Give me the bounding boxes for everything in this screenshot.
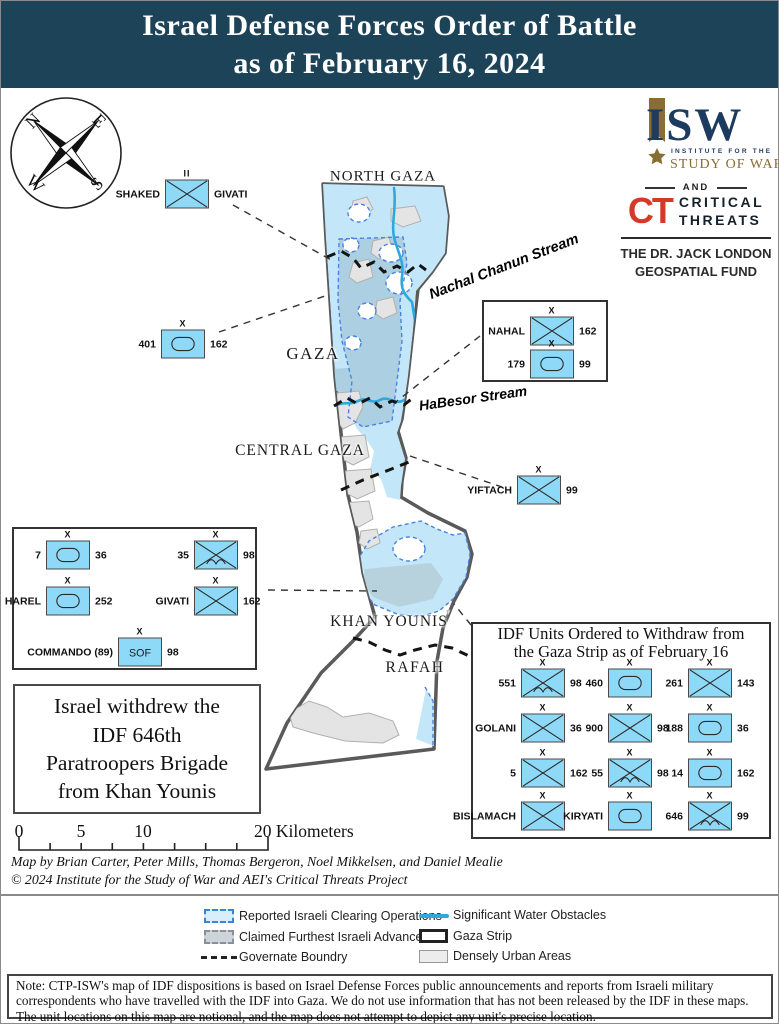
unit-echelon: X [626,749,633,758]
armor-symbol-icon [609,670,651,697]
isw-institute-text: INSTITUTE FOR THE [671,148,772,155]
unit-echelon: X [539,704,546,713]
unit-echelon: II [183,170,190,179]
credit-line2: © 2024 Institute for the Study of War an… [11,872,407,888]
callout-shaked [233,205,333,261]
armor-symbol-icon [531,351,573,378]
unit-left-label: COMMANDO (89) [27,646,113,658]
legend-label-governate: Governate Boundry [239,950,347,964]
credit-line1: Map by Brian Carter, Peter Mills, Thomas… [11,854,503,870]
unit-symbol-box [165,180,209,209]
unit-left-label: 460 [585,677,603,689]
annotation-box: Israel withdrew the IDF 646th Paratroope… [13,684,261,814]
unit-right-label: 99 [579,358,591,370]
legend-swatch-advances [204,930,234,944]
unit-golani: XGOLANI36 [521,714,565,743]
callout-yiftach [410,456,502,487]
label-rafah: RAFAH [386,659,445,677]
unit-echelon: X [706,749,713,758]
unit-left-label: BISLAMACH [453,810,516,822]
unit-left-label: GOLANI [475,722,516,734]
svg-text:SOF: SOF [129,648,151,660]
unit-symbol-box [608,669,652,698]
unit-left-label: 188 [665,722,683,734]
ct-word-threats: THREATS [679,212,764,230]
legend-swatch-governate [201,956,237,959]
legend-label-urban: Densely Urban Areas [453,949,571,963]
unit-right-label: 98 [167,646,179,658]
critical-threats-logo: CT CRITICAL THREATS [613,194,779,229]
infantry-symbol-icon [518,477,560,504]
clearing-operations-east-blob [447,637,463,663]
separator-dash [717,187,747,189]
unit-echelon: X [136,628,143,637]
unit-echelon: X [706,704,713,713]
scale-label-5: 5 [77,821,86,842]
unit-echelon: X [212,577,219,586]
geospatial-fund-label: THE DR. JACK LONDON GEOSPATIAL FUND [613,245,779,280]
armor-symbol-icon [689,715,731,742]
withdraw-box-title: IDF Units Ordered to Withdraw from the G… [475,625,767,661]
unit-left-label: 35 [177,549,189,561]
unit-symbol-box [521,759,565,788]
legend-label-gaza-strip: Gaza Strip [453,929,512,943]
unit-35: X3598 [194,541,238,570]
airborne-symbol-icon [522,670,564,697]
unit-symbol-box [608,759,652,788]
cleared-hole [345,336,361,350]
cleared-hole [343,238,359,252]
unit-echelon: X [706,659,713,668]
note-box: Note: CTP-ISW's map of IDF dispositions … [7,974,773,1019]
unit-symbol-box [46,587,90,616]
unit-echelon: X [539,749,546,758]
unit-left-label: SHAKED [116,188,160,200]
unit-echelon: X [626,792,633,801]
unit-right-label: 98 [657,767,669,779]
unit-echelon: X [539,659,546,668]
and-label: AND [683,182,710,193]
unit-right-label: 99 [566,484,578,496]
unit-echelon: X [626,704,633,713]
unit-symbol-box [688,759,732,788]
unit-401-brigade: X401162 [161,330,205,359]
unit-right-label: 162 [243,595,261,607]
unit-echelon: X [179,320,186,329]
unit-right-label: 98 [243,549,255,561]
unit-symbol-box [521,802,565,831]
infantry-symbol-icon [522,715,564,742]
label-central-gaza: CENTRAL GAZA [235,442,365,460]
unit-symbol-box [194,541,238,570]
unit-right-label: 36 [95,549,107,561]
branding-divider [621,237,771,239]
unit-echelon: X [539,792,546,801]
legend-label-water: Significant Water Obstacles [453,908,606,922]
unit-echelon: X [626,659,633,668]
footer-divider [1,894,778,896]
unit-givati: XGIVATI162 [194,587,238,616]
scale-label-20km: 20 Kilometers [254,821,354,842]
unit-symbol-box [517,476,561,505]
isw-logo: ISW INSTITUTE FOR THE STUDY OF WAR [613,96,779,176]
unit-551: X55198 [521,669,565,698]
unit-55: X5598 [608,759,652,788]
cleared-hole [358,303,376,319]
cleared-hole [386,272,412,294]
armor-symbol-icon [47,542,89,569]
unit-left-label: KIRYATI [563,810,603,822]
isw-acronym: ISW [646,99,743,151]
cleared-hole [393,537,425,561]
unit-right-label: 162 [737,767,755,779]
unit-echelon: X [64,577,71,586]
unit-right-label: 99 [737,810,749,822]
unit-left-label: GIVATI [156,595,189,607]
unit-left-label: 551 [498,677,516,689]
unit-left-label: 14 [671,767,683,779]
unit-left-label: 5 [510,767,516,779]
unit-left-label: 7 [35,549,41,561]
unit-symbol-box [194,587,238,616]
unit-echelon: X [64,531,71,540]
separator-dash [645,187,675,189]
armor-symbol-icon [689,760,731,787]
unit-900: X90098 [608,714,652,743]
legend-label-advances: Claimed Furthest Israeli Advances [239,930,429,944]
infantry-symbol-icon [166,181,208,208]
unit-right-label: 36 [570,722,582,734]
unit-left-label: 261 [665,677,683,689]
legend-label-clearing: Reported Israeli Clearing Operations [239,909,442,923]
compass-rose: N E S W [1,88,131,218]
unit-bislamach: XBISLAMACH [521,802,565,831]
infantry-symbol-icon [689,670,731,697]
unit-right-label: 162 [579,325,597,337]
unit-echelon: X [706,792,713,801]
infantry-symbol-icon [195,588,237,615]
isw-study-of-war-text: STUDY OF WAR [670,157,779,172]
unit-5: X5162 [521,759,565,788]
unit-right-label: GIVATI [214,188,247,200]
unit-7: X736 [46,541,90,570]
unit-right-label: 162 [570,767,588,779]
airborne-symbol-icon [195,542,237,569]
unit-188: X18836 [688,714,732,743]
infantry-symbol-icon [522,760,564,787]
unit-echelon: X [212,531,219,540]
callout-401 [219,295,328,332]
unit-right-label: 36 [737,722,749,734]
unit-commando-89: XCOMMANDO (89)SOF98 [118,638,162,667]
idf-order-of-battle-map: Israel Defense Forces Order of Battle as… [0,0,779,1024]
armor-symbol-icon [162,331,204,358]
legend-swatch-water [419,914,449,918]
legend-swatch-urban [419,950,448,963]
unit-460: X460 [608,669,652,698]
unit-left-label: 646 [665,810,683,822]
unit-symbol-box [161,330,205,359]
unit-echelon: X [535,466,542,475]
unit-left-label: 179 [507,358,525,370]
unit-shaked-givati: IISHAKEDGIVATI [165,180,209,209]
unit-symbol-box [521,669,565,698]
unit-646: X64699 [688,802,732,831]
unit-179: X17999 [530,350,574,379]
label-north-gaza: NORTH GAZA [330,169,436,186]
unit-yiftach: XYIFTACH99 [517,476,561,505]
unit-echelon: X [548,307,555,316]
unit-14: X14162 [688,759,732,788]
callout-harel [268,590,377,591]
scale-label-10: 10 [134,821,152,842]
infantry-symbol-icon [522,803,564,830]
unit-symbol-box [688,714,732,743]
unit-right-label: 143 [737,677,755,689]
clearing-dashed-outline [447,637,463,663]
unit-261: X261143 [688,669,732,698]
unit-harel: XHAREL252 [46,587,90,616]
unit-left-label: 900 [585,722,603,734]
unit-right-label: 252 [95,595,113,607]
unit-symbol-box [608,714,652,743]
unit-symbol-box [608,802,652,831]
ct-word-critical: CRITICAL [679,194,764,212]
legend-swatch-gaza-strip [419,929,448,943]
scale-label-0: 0 [15,821,24,842]
airborne-symbol-icon [689,803,731,830]
unit-right-label: 98 [570,677,582,689]
unit-left-label: YIFTACH [467,484,512,496]
infantry-symbol-icon [609,715,651,742]
unit-symbol-box [688,802,732,831]
unit-symbol-box [530,350,574,379]
airborne-symbol-icon [609,760,651,787]
unit-left-label: NAHAL [488,325,525,337]
unit-left-label: HAREL [5,595,41,607]
cleared-hole [348,204,370,222]
legend-swatch-clearing [204,909,234,923]
unit-left-label: 401 [138,338,156,350]
callout-withdraw-box [454,604,471,625]
label-gaza: GAZA [286,344,339,364]
unit-symbol-box [46,541,90,570]
branding-block: ISW INSTITUTE FOR THE STUDY OF WAR AND C… [613,96,779,181]
armor-symbol-icon [609,803,651,830]
label-khan-younis: KHAN YOUNIS [330,613,448,631]
ct-logo-icon: CT [628,195,672,227]
sof-symbol-icon: SOF [119,639,161,666]
unit-symbol-box [688,669,732,698]
unit-echelon: X [548,340,555,349]
unit-kiryati: XKIRYATI [608,802,652,831]
armor-symbol-icon [47,588,89,615]
unit-symbol-box: SOF [118,638,162,667]
unit-right-label: 162 [210,338,228,350]
unit-left-label: 55 [591,767,603,779]
unit-symbol-box [521,714,565,743]
